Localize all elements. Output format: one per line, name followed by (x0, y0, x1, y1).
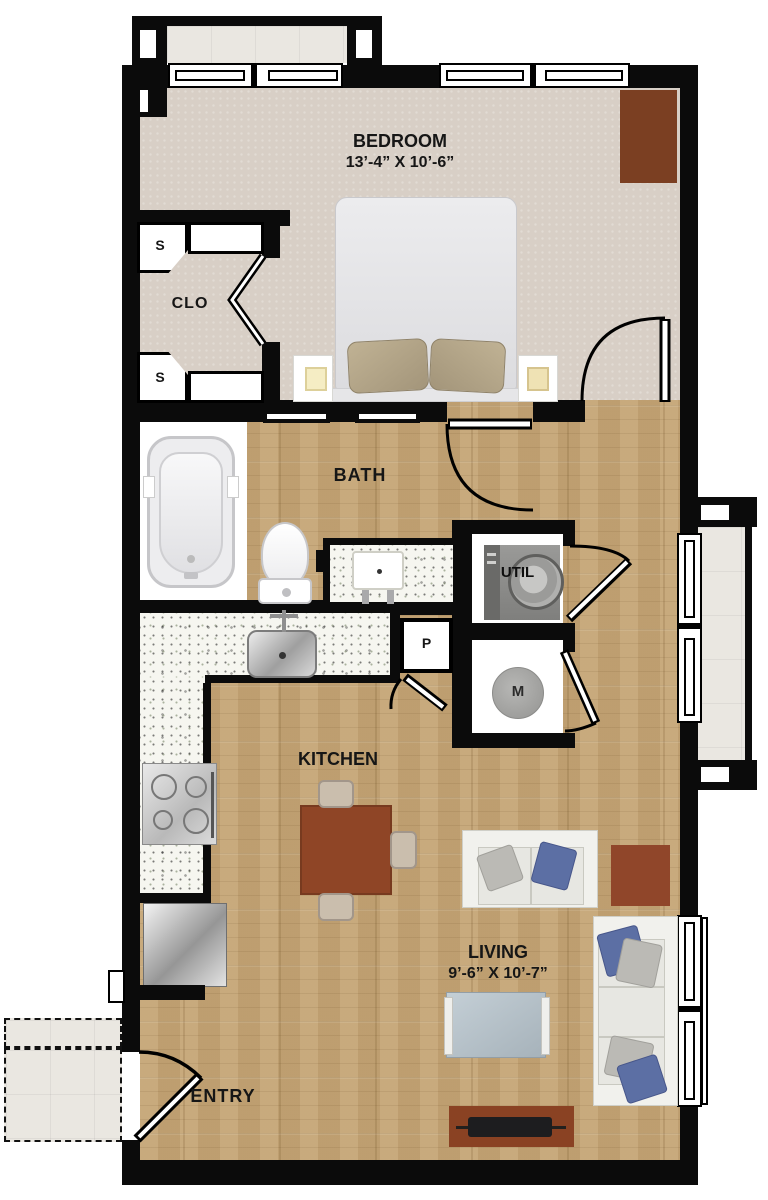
pantry-label: P (400, 636, 453, 651)
closet-shelf-marker-bottom: S (137, 370, 183, 385)
door-swings (0, 0, 768, 1200)
bedroom-dims: 13’-4” X 10’-6” (300, 154, 500, 172)
closet-label: CLO (150, 295, 230, 313)
mechanical-label: M (492, 684, 544, 701)
kitchen-label: KITCHEN (288, 750, 388, 770)
living-dims: 9’-6” X 10’-7” (428, 965, 568, 983)
floor-plan: BEDROOM 13’-4” X 10’-6” CLO S S BATH UTI… (0, 0, 768, 1200)
living-label: LIVING (428, 943, 568, 963)
utility-label: UTIL (472, 565, 563, 582)
bath-label: BATH (310, 466, 410, 486)
closet-shelf-marker-top: S (137, 238, 183, 253)
entry-label: ENTRY (168, 1087, 278, 1107)
bedroom-label: BEDROOM (300, 132, 500, 152)
